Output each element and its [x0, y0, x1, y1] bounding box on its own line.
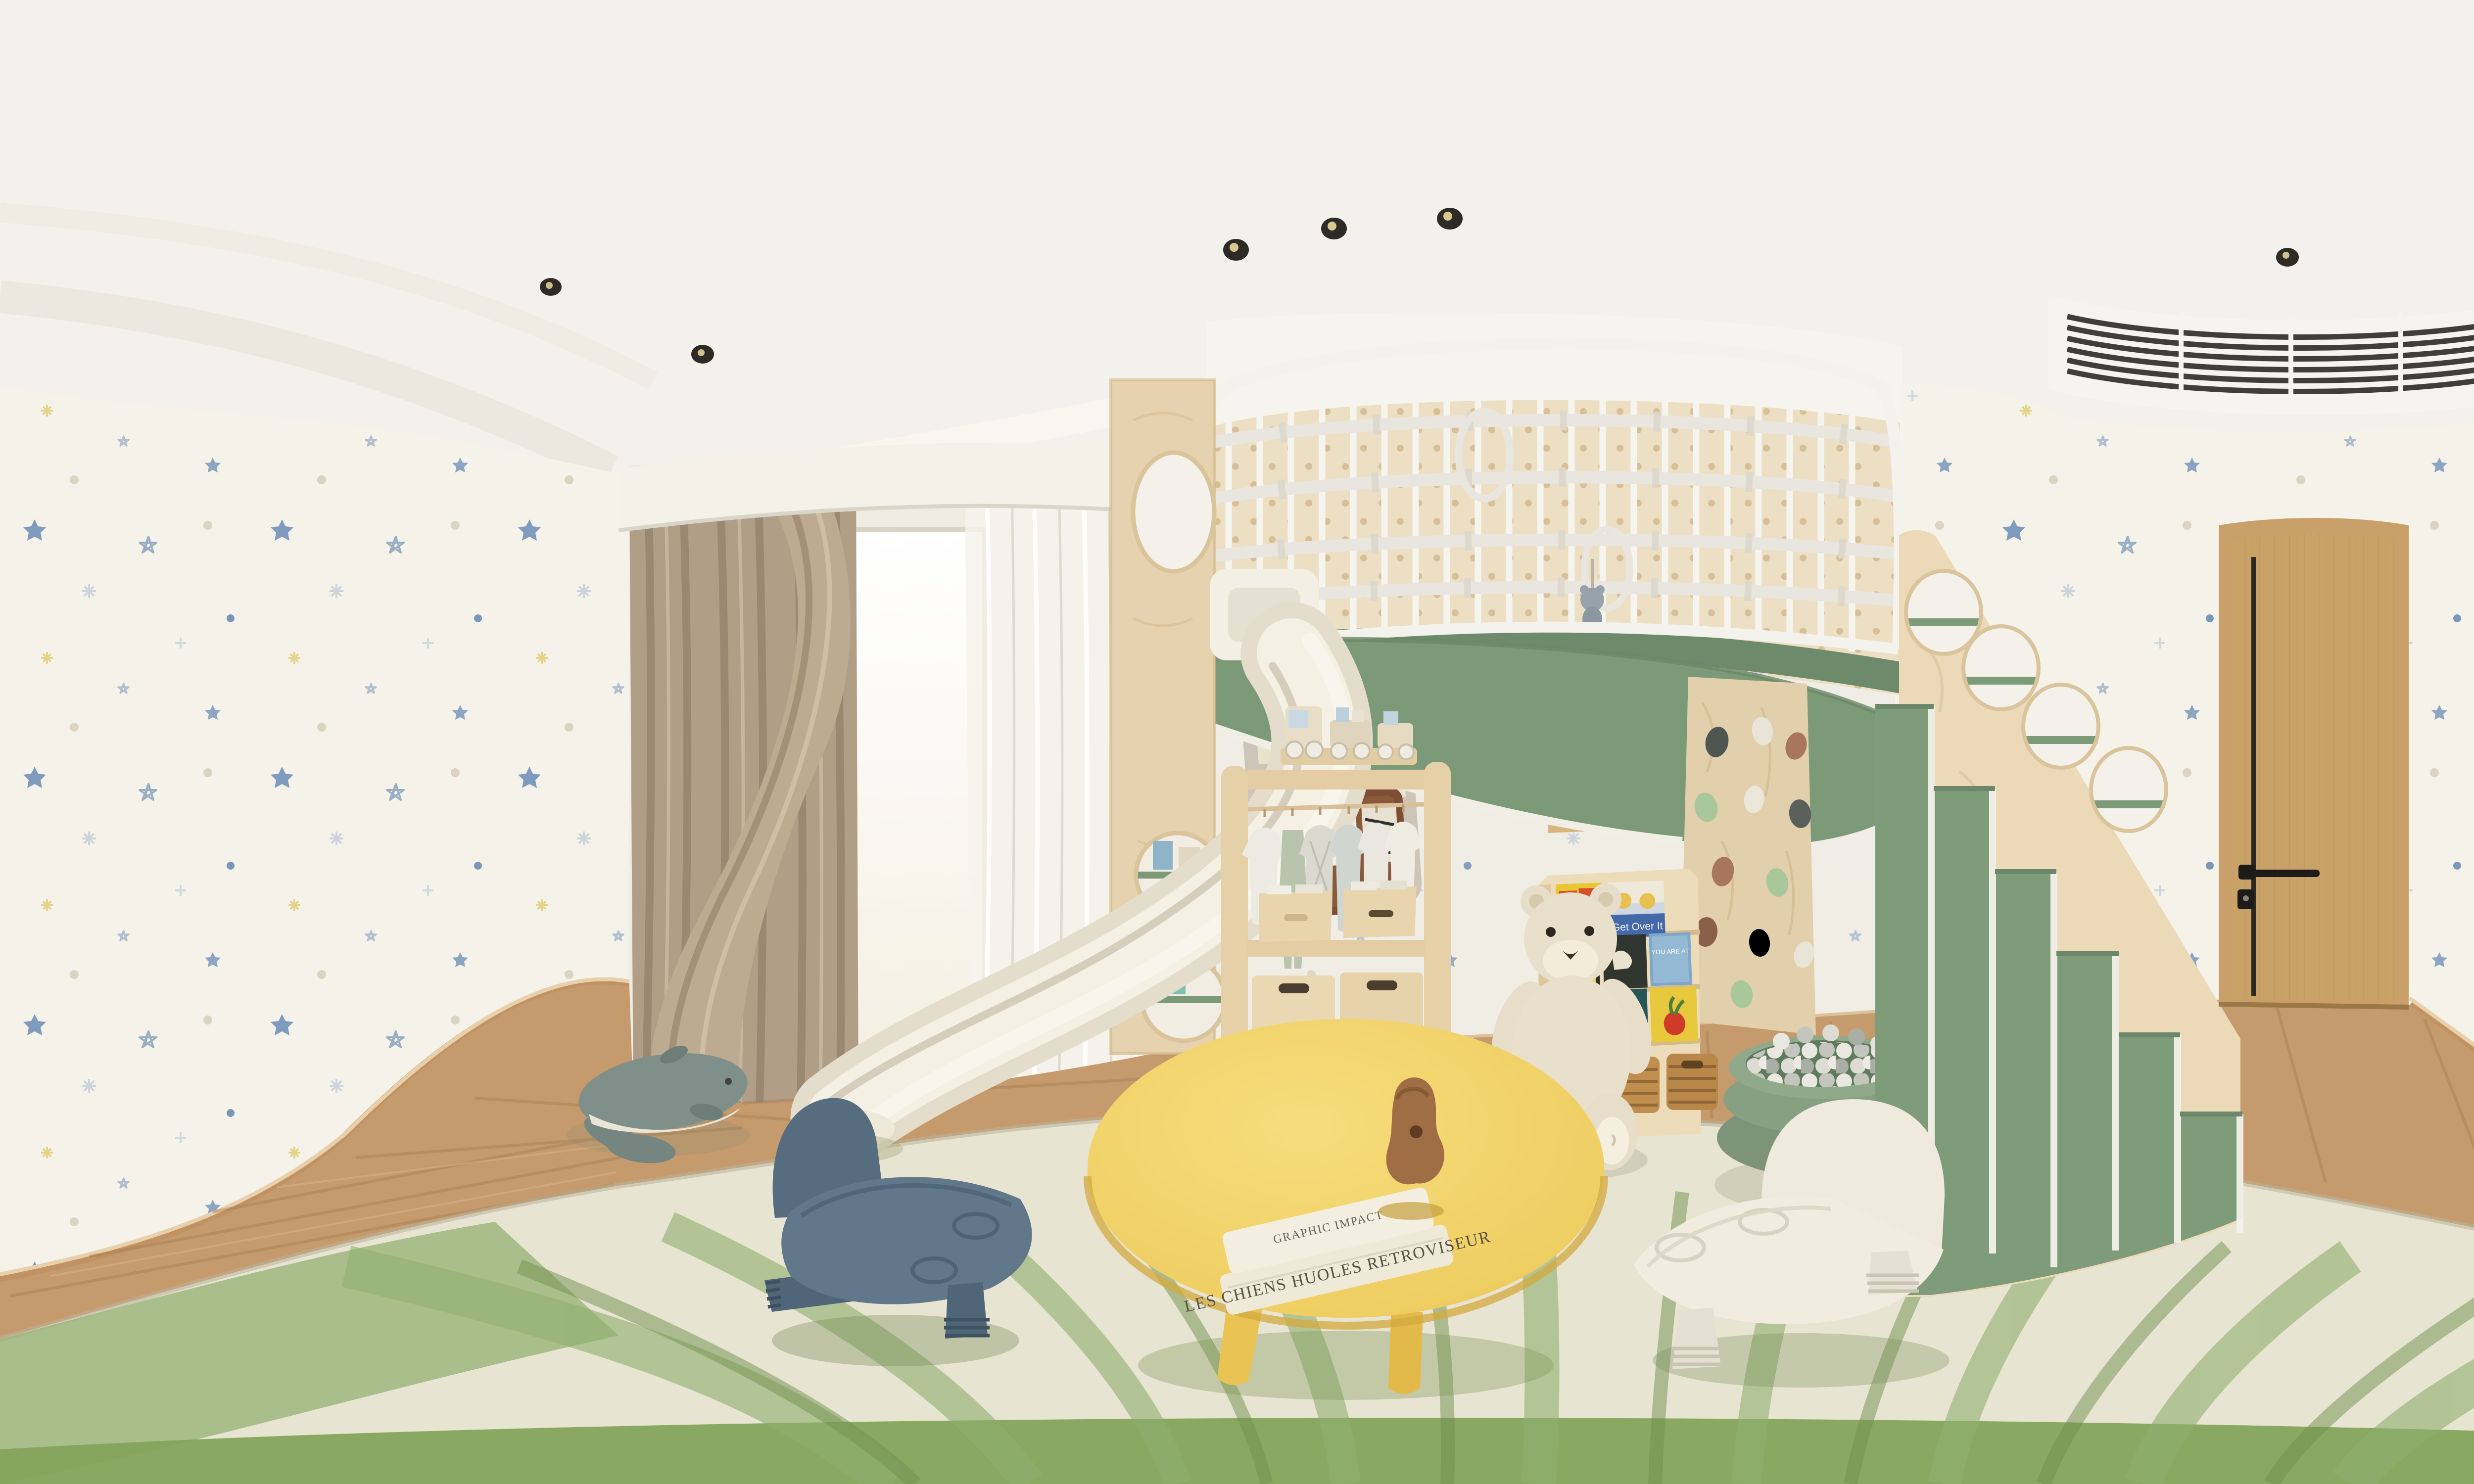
panorama-stage: Hello! PICASSO	[0, 0, 2474, 1484]
basket	[1666, 1054, 1718, 1110]
wardrobe-post-left	[1221, 766, 1248, 1061]
porthole	[1963, 626, 2039, 709]
toy-train	[1281, 706, 1417, 765]
wardrobe-mid-shelf	[1247, 940, 1425, 957]
book-radish	[1650, 986, 1698, 1042]
door-inlay-strip	[2251, 557, 2256, 996]
table-shadow	[1138, 1331, 1554, 1400]
downlight	[691, 345, 714, 364]
downlight	[1437, 208, 1463, 230]
downlight	[1321, 218, 1347, 239]
book-you-are-at: YOU ARE AT	[1649, 932, 1692, 986]
storage-box-left	[1259, 884, 1332, 942]
wardrobe-post-right	[1424, 762, 1451, 1057]
wardrobe-top-shelf	[1247, 770, 1425, 789]
you-are-at-text: YOU ARE AT	[1651, 947, 1689, 956]
playroom-panorama: Hello! PICASSO	[0, 0, 2474, 1484]
door-grain	[2233, 533, 2394, 1001]
downlight	[2276, 248, 2299, 267]
door	[2219, 518, 2409, 1007]
storage-box-right	[1343, 881, 1417, 938]
teddy-muzzle	[1543, 940, 1598, 981]
downlight	[540, 278, 562, 296]
porthole	[2023, 685, 2098, 768]
porthole	[2091, 748, 2166, 831]
door-threshold	[2219, 1004, 2409, 1007]
get-over-it-text: Get Over It	[1612, 920, 1663, 933]
climbing-wall	[1680, 677, 1817, 1035]
downlight	[1223, 239, 1249, 261]
whale-eye	[725, 1078, 732, 1085]
blue-chair-front-leg	[944, 1282, 990, 1339]
